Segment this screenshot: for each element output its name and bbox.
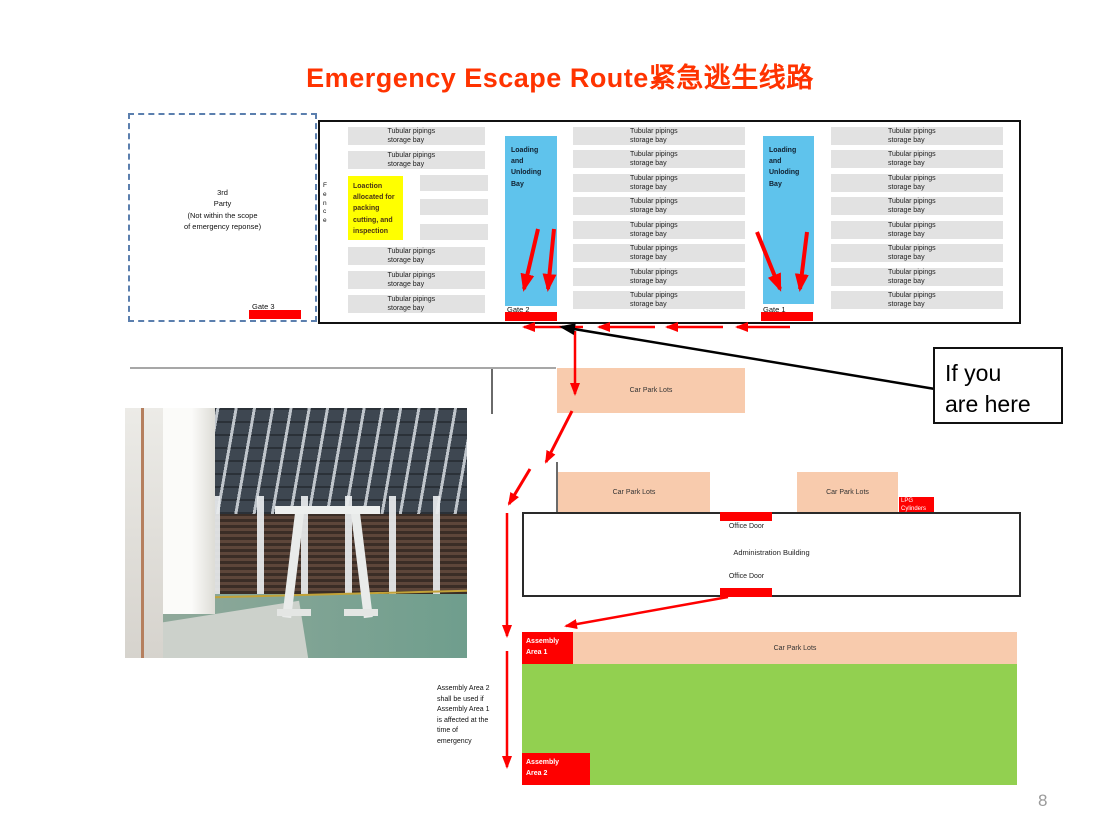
office-door-top-label: Office Door	[694, 523, 799, 530]
storage-bay: Tubular pipings storage bay	[573, 150, 745, 168]
assembly-note: Assembly Area 2 shall be used if Assembl…	[437, 684, 515, 747]
storage-bay: Tubular pipings storage bay	[573, 291, 745, 309]
third-party-area: 3rd Party (Not within the scope of emerg…	[128, 113, 317, 322]
photo-pole	[141, 408, 144, 658]
gate2-marker	[505, 312, 557, 321]
office-door-bottom-marker	[720, 588, 772, 597]
photo-aframe-rack	[275, 496, 380, 616]
administration-building: Office Door Administration Building Offi…	[522, 512, 1021, 597]
storage-building: F e n c e Tubular pipings storage bay Tu…	[318, 120, 1021, 324]
small-bay	[420, 199, 488, 215]
storage-bay: Tubular pipings storage bay	[831, 197, 1003, 215]
storage-bay: Tubular pipings storage bay	[348, 151, 485, 169]
office-door-top-marker	[720, 512, 772, 521]
assembly-area-2: Assembly Area 2	[522, 753, 590, 785]
storage-bay: Tubular pipings storage bay	[573, 174, 745, 192]
slide: Emergency Escape Route紧急逃生线路 3rd Party (…	[0, 0, 1120, 840]
storage-bay: Tubular pipings storage bay	[348, 247, 485, 265]
storage-bay: Tubular pipings storage bay	[573, 197, 745, 215]
page-number: 8	[1038, 791, 1047, 811]
storage-bay: Tubular pipings storage bay	[831, 268, 1003, 286]
car-park-4: Car Park Lots	[573, 632, 1017, 664]
page-title: Emergency Escape Route紧急逃生线路	[0, 56, 1120, 95]
gate3-marker	[249, 310, 301, 319]
lpg-cylinders-marker: LPG Cylinders	[899, 497, 934, 512]
storage-bay: Tubular pipings storage bay	[573, 221, 745, 239]
warehouse-photo	[125, 408, 467, 658]
storage-bay: Tubular pipings storage bay	[348, 127, 485, 145]
storage-bay: Tubular pipings storage bay	[831, 174, 1003, 192]
loading-bay-1: Loading and Unloding Bay	[505, 136, 557, 306]
loading-bay-2: Loading and Unloding Bay	[763, 136, 814, 304]
storage-bay: Tubular pipings storage bay	[348, 271, 485, 289]
office-door-bottom-label: Office Door	[694, 573, 799, 580]
car-park-1: Car Park Lots	[557, 368, 745, 413]
you-are-here-callout: If you are here	[933, 347, 1063, 424]
third-party-label: 3rd Party (Not within the scope of emerg…	[130, 187, 315, 232]
car-park-2: Car Park Lots	[558, 472, 710, 512]
photo-exterior-strip	[125, 408, 163, 658]
packing-area-note: Loaction allocated for packing cutting, …	[348, 176, 403, 240]
storage-bay: Tubular pipings storage bay	[348, 295, 485, 313]
storage-bay: Tubular pipings storage bay	[831, 291, 1003, 309]
assembly-field	[522, 664, 1017, 785]
storage-bay: Tubular pipings storage bay	[573, 244, 745, 262]
small-bay	[420, 175, 488, 191]
photo-white-pillar	[163, 408, 215, 614]
storage-bay: Tubular pipings storage bay	[573, 127, 745, 145]
gate1-marker	[761, 312, 813, 321]
administration-building-label: Administration Building	[524, 548, 1019, 557]
fence-label: F e n c e	[323, 182, 327, 226]
small-bay	[420, 224, 488, 240]
storage-bay: Tubular pipings storage bay	[831, 150, 1003, 168]
assembly-area-1: Assembly Area 1	[522, 632, 573, 664]
storage-bay: Tubular pipings storage bay	[831, 244, 1003, 262]
storage-bay: Tubular pipings storage bay	[831, 221, 1003, 239]
storage-bay: Tubular pipings storage bay	[573, 268, 745, 286]
storage-bay: Tubular pipings storage bay	[831, 127, 1003, 145]
car-park-3: Car Park Lots	[797, 472, 898, 512]
